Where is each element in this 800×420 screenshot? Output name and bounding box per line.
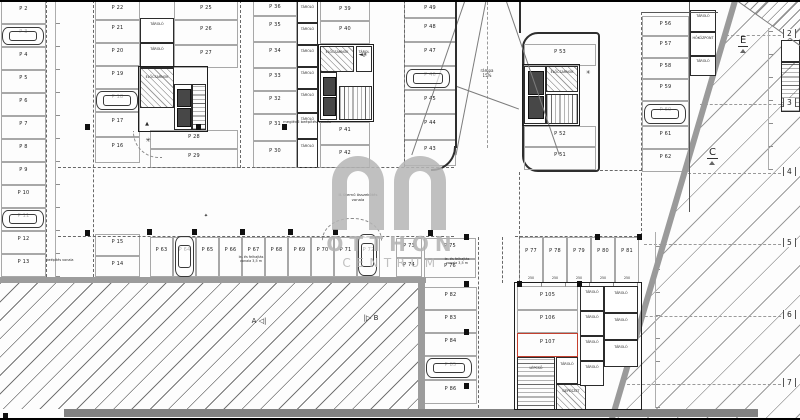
parking-stall-label: P 68 — [266, 248, 287, 253]
parking-stall-label: P 82 — [425, 293, 476, 298]
parking-stall-label: P 4 — [2, 53, 45, 58]
storage-room: TÁROLÓ — [690, 10, 716, 32]
annotation-text: 250 — [523, 276, 539, 280]
parking-stall: P 20 — [95, 43, 140, 66]
parking-stall-label: P 25 — [175, 6, 237, 11]
parking-stall: P 73 — [396, 238, 422, 258]
room-label: TÁROLÓ — [299, 6, 316, 10]
parking-stall: P 35 — [253, 16, 297, 42]
parking-stall-label: P 29 — [151, 154, 237, 159]
parking-stall: P 25 — [174, 1, 238, 20]
storage-room: TÁROLÓ — [297, 45, 318, 67]
parking-stall: P 57 — [642, 36, 689, 58]
annotation-text: beépítés vonala — [30, 258, 90, 262]
parking-stall: P 84 — [424, 333, 477, 356]
parking-stall-label: P 12 — [2, 237, 45, 242]
parking-stall: P 33 — [253, 68, 297, 91]
section-marker: C — [707, 140, 718, 165]
storage-room: TÁROLÓ — [140, 43, 174, 68]
parking-stall: P 7 — [1, 116, 46, 139]
parking-stall-label: P 59 — [643, 85, 688, 90]
structural-column — [192, 229, 197, 235]
sheet-top-border — [0, 0, 800, 2]
parking-stall-label: P 22 — [96, 6, 139, 11]
annotation-text: ◄✳ — [355, 52, 371, 59]
parking-stall-label: P 32 — [254, 97, 296, 102]
bottom-retaining-wall — [64, 409, 758, 417]
sheet-bottom-border — [0, 418, 800, 420]
parking-stall-label: P 42 — [321, 151, 369, 156]
storage-room: TÁROLÓ — [297, 23, 318, 45]
parking-stall: P 41 — [320, 122, 370, 145]
parking-stall: P 107 — [517, 333, 578, 357]
section-marker: E — [738, 28, 748, 53]
structural-column — [577, 281, 582, 287]
parking-stall-label: P 66 — [220, 248, 241, 253]
parking-stall-label: P 67 — [243, 248, 264, 253]
parking-stall-label: P 17 — [96, 119, 139, 124]
parking-stall: P 61 — [642, 126, 689, 149]
parking-stall: P 42 — [320, 145, 370, 168]
parking-stall: P 56 — [642, 16, 689, 36]
parking-stall-label: P 77 — [520, 249, 542, 254]
drawing-line — [726, 35, 786, 36]
drawing-line — [240, 0, 241, 168]
parking-stall: P 82 — [424, 287, 477, 310]
parking-stall: P 8 — [1, 139, 46, 162]
parking-stall-label: P 9 — [2, 168, 45, 173]
parking-stall-label: P 41 — [321, 128, 369, 133]
parking-stall: P 4 — [1, 47, 46, 70]
drawing-line — [404, 0, 405, 167]
parking-stall: P 14 — [95, 256, 140, 277]
parking-stall-label: P 81 — [616, 249, 638, 254]
drawing-line — [502, 237, 503, 283]
car-icon — [406, 69, 450, 88]
structural-column — [428, 230, 433, 236]
parking-stall: P 59 — [642, 79, 689, 101]
ramp-right-wall — [519, 0, 521, 33]
structural-column — [85, 124, 90, 130]
storage-room: TÁROLÓ — [140, 18, 174, 43]
parking-stall: P 71 — [334, 237, 357, 277]
annotation-text: rámpa 15% — [472, 68, 502, 78]
parking-stall-label: P 71 — [335, 248, 356, 253]
parking-stall-label: P 5 — [2, 76, 45, 81]
parking-stall: P 9 — [1, 162, 46, 185]
parking-stall-label: P 30 — [254, 149, 296, 154]
structural-column — [595, 234, 600, 240]
room-label: TÁROLÓ — [299, 50, 316, 54]
structural-column — [464, 281, 469, 287]
parking-stall: P 22 — [95, 1, 140, 20]
parking-stall: P 36 — [253, 1, 297, 16]
storage-room: TÁROLÓ — [690, 56, 716, 76]
drawing-line — [700, 104, 786, 105]
benchmark-triangle-icon — [709, 161, 715, 165]
annotation-text: 250 — [595, 276, 611, 280]
parking-stall-label: P 44 — [405, 121, 455, 126]
drawing-line — [642, 12, 718, 13]
parking-stall: P 52 — [524, 126, 596, 147]
parking-stall-label: P 69 — [289, 248, 310, 253]
parking-stall: P 26 — [174, 20, 238, 45]
parking-stall: P 49 — [404, 1, 456, 18]
parking-stall-label: P 7 — [2, 122, 45, 127]
parking-stall-label: P 2 — [2, 7, 45, 12]
core-outline — [522, 64, 580, 126]
parking-stall-label: P 62 — [643, 155, 688, 160]
parking-stall: P 74 — [396, 258, 422, 277]
parking-stall-label: P 6 — [2, 99, 45, 104]
parking-stall: P 86 — [424, 380, 477, 404]
storage-room: TÁROLÓ — [297, 113, 318, 139]
structural-column — [288, 229, 293, 235]
parking-stall-label: P 49 — [405, 6, 455, 11]
parking-stall-label: P 53 — [525, 50, 595, 55]
room-label: HŐKÖZPONT — [692, 37, 714, 41]
parking-stall-label: P 61 — [643, 132, 688, 137]
structural-column — [464, 234, 469, 240]
hatch-top-wall-band — [0, 277, 426, 283]
storage-room: TÁROLÓ — [297, 67, 318, 89]
parking-stall: P 30 — [253, 141, 297, 168]
parking-stall-label: P 75 — [425, 244, 475, 249]
parking-stall: P 69 — [288, 237, 311, 277]
parking-stall-label: P 74 — [397, 263, 421, 268]
parking-stall-label: P 52 — [525, 132, 595, 137]
structural-column — [85, 230, 90, 236]
drawing-line — [515, 236, 642, 237]
parking-stall: P 48 — [404, 18, 456, 42]
annotation-text: meglévő beépítés vonala — [252, 120, 362, 125]
parking-stall-label: P 57 — [643, 42, 688, 47]
parking-stall: P 53 — [524, 44, 596, 66]
annotation-text: ▲ — [142, 121, 152, 127]
annotation-text: 250 — [547, 276, 563, 280]
structural-column — [147, 229, 152, 235]
structural-column — [464, 383, 469, 389]
parking-stall-label: P 26 — [175, 27, 237, 32]
floor-plan-sheet: P 2P 3P 4P 5P 6P 7P 8P 9P 10P 11P 12P 13… — [0, 0, 800, 420]
grid-axis-bubble: 6 — [783, 310, 796, 319]
parking-stall-label: P 40 — [321, 27, 369, 32]
parking-stall-label: P 48 — [405, 25, 455, 30]
drawing-line — [46, 0, 47, 277]
parking-stall: P 70 — [311, 237, 334, 277]
room-label: TÁROLÓ — [299, 72, 316, 76]
benchmark-triangle-icon — [740, 49, 746, 53]
parking-stall-label: P 80 — [592, 249, 614, 254]
parking-stall-label: P 36 — [254, 5, 296, 10]
hatch-right-wall-band — [418, 283, 425, 410]
annotation-text: A ◁| — [246, 317, 272, 326]
structural-column — [464, 329, 469, 335]
parking-stall: P 39 — [320, 1, 370, 21]
drawing-line — [58, 236, 454, 237]
parking-stall-label: P 27 — [175, 51, 237, 56]
room-label: TÁROLÓ — [142, 23, 172, 27]
parking-stall-label: P 78 — [544, 249, 566, 254]
room-label: TÁROLÓ — [692, 15, 714, 19]
car-icon — [96, 91, 138, 110]
car-icon — [2, 27, 44, 45]
structural-column — [637, 234, 642, 240]
parking-stall-label: P 51 — [525, 153, 595, 158]
annotation-text: le- és felhajtás vonala 3,5 m — [428, 257, 486, 266]
grid-axis-bubble: 7 — [783, 378, 796, 387]
parking-stall: P 12 — [1, 231, 46, 254]
drawing-line — [600, 170, 642, 171]
parking-stall-label: P 79 — [568, 249, 590, 254]
structural-column — [333, 229, 338, 235]
car-icon — [644, 104, 686, 124]
parking-stall-label: P 35 — [254, 23, 296, 28]
drawing-line — [688, 173, 786, 174]
parking-stall: P 83 — [424, 310, 477, 333]
grid-axis-bubble: 5 — [783, 238, 796, 247]
parking-stall: P 29 — [150, 149, 238, 168]
parking-stall: P 5 — [1, 70, 46, 93]
parking-stall-label: P 63 — [151, 248, 172, 253]
structural-column — [282, 124, 287, 130]
drawing-line — [519, 172, 520, 283]
grid-axis-bubble: 4 — [783, 167, 796, 176]
drawing-line — [630, 316, 786, 317]
structural-column — [196, 124, 201, 130]
parking-stall-label: P 16 — [96, 144, 139, 149]
parking-stall-label: P 33 — [254, 74, 296, 79]
annotation-text: ✦ — [201, 213, 211, 219]
room-label: TÁROLÓ — [299, 28, 316, 32]
parking-stall-label: P 70 — [312, 248, 333, 253]
storage-room: TÁROLÓ — [297, 1, 318, 23]
parking-stall-label: P 56 — [643, 22, 688, 27]
parking-stall-label: P 19 — [96, 72, 139, 77]
annotation-text: le- és felhajtás vonala 3,5 m — [222, 255, 280, 264]
structural-column — [517, 281, 522, 287]
drawing-line — [622, 384, 786, 385]
drawing-line — [768, 28, 773, 170]
drawing-line — [689, 2, 690, 212]
room-label: TÁROLÓ — [299, 94, 316, 98]
drawing-line — [58, 167, 454, 168]
parking-stall: P 44 — [404, 114, 456, 140]
car-icon — [358, 234, 377, 276]
parking-stall: P 34 — [253, 42, 297, 68]
parking-stall-label: P 21 — [96, 26, 139, 31]
room-label: TÁROLÓ — [299, 145, 316, 149]
parking-stall-label: P 65 — [197, 248, 218, 253]
room-label: TÁROLÓ — [142, 48, 172, 52]
drawing-line — [641, 12, 642, 236]
parking-stall: P 15 — [95, 234, 140, 256]
parking-stall-label: P 83 — [425, 316, 476, 321]
parking-stall-label: P 15 — [96, 240, 139, 245]
parking-stall: P 75 — [424, 238, 476, 259]
annotation-text: 250 — [571, 276, 587, 280]
storage-room: TÁROLÓ — [297, 89, 318, 113]
parking-stall-label: P 39 — [321, 7, 369, 12]
parking-stall-label: P 58 — [643, 64, 688, 69]
parking-stall: P 10 — [1, 185, 46, 208]
parking-stall: P 27 — [174, 45, 238, 68]
parking-stall: P 65 — [196, 237, 219, 277]
parking-stall: P 63 — [150, 237, 173, 277]
car-icon — [426, 358, 472, 378]
car-icon — [175, 236, 194, 277]
parking-stall-label: P 28 — [151, 135, 237, 140]
parking-stall: P 19 — [95, 66, 140, 89]
parking-stall-label: P 10 — [2, 191, 45, 196]
annotation-text: ✳ — [143, 137, 153, 145]
parking-stall-label: P 73 — [397, 244, 421, 249]
parking-stall: P 28 — [150, 130, 238, 149]
parking-stall: P 40 — [320, 21, 370, 44]
parking-stall-label: P 20 — [96, 49, 139, 54]
room-label: TÁROLÓ — [692, 60, 714, 64]
structural-column — [240, 229, 245, 235]
storage-room: HŐKÖZPONT — [690, 32, 716, 56]
parking-stall-label: P 107 — [518, 340, 577, 345]
annotation-text: ✳ — [583, 70, 593, 77]
parking-stall-label: P 8 — [2, 145, 45, 150]
parking-stall: P 51 — [524, 147, 596, 170]
parking-stall: P 16 — [95, 137, 140, 163]
grid-axis-bubble: 2 — [783, 29, 796, 38]
parking-stall: P 2 — [1, 1, 46, 24]
parking-stall-label: P 34 — [254, 49, 296, 54]
parking-stall-label: P 14 — [96, 262, 139, 267]
ramp-left-wall — [455, 0, 457, 148]
parking-stall: P 21 — [95, 20, 140, 43]
annotation-text: |▷ B — [358, 314, 384, 323]
parking-stall: P 6 — [1, 93, 46, 116]
parking-stall-label: P 84 — [425, 339, 476, 344]
drawing-line — [93, 0, 94, 277]
annotation-text: 250 — [619, 276, 635, 280]
storage-room: TÁROLÓ — [297, 139, 318, 168]
parking-stall: P 58 — [642, 58, 689, 79]
car-icon — [2, 210, 44, 228]
grid-axis-bubble: 3 — [783, 98, 796, 107]
annotation-text: II. ütemű összekötés vonala — [316, 193, 400, 202]
parking-stall: P 32 — [253, 91, 297, 114]
